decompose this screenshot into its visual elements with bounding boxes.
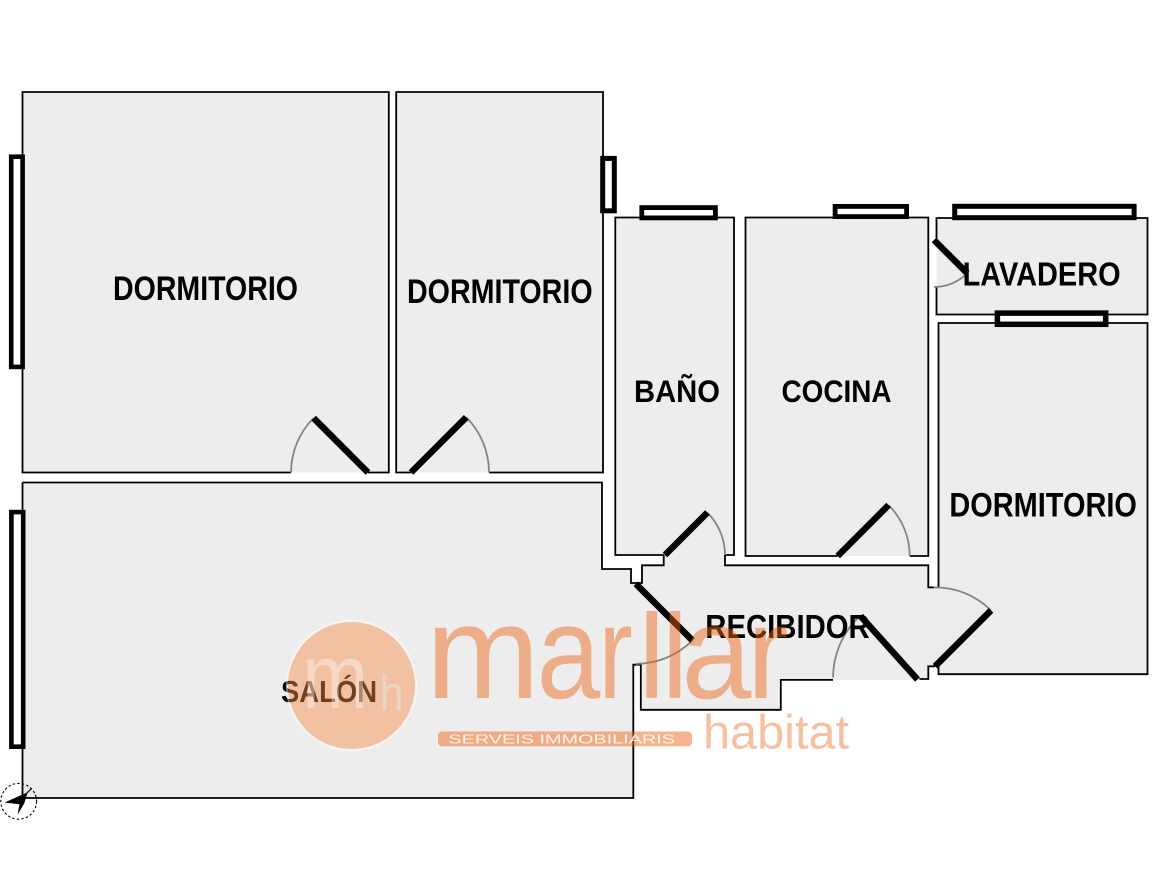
svg-text:a: a [681, 579, 751, 727]
svg-text:r: r [747, 579, 789, 727]
svg-text:habitat: habitat [703, 706, 849, 759]
svg-text:m: m [426, 579, 540, 727]
svg-text:m: m [302, 626, 368, 728]
svg-text:r: r [598, 579, 633, 727]
svg-text:h: h [380, 666, 404, 722]
svg-text:a: a [537, 579, 601, 727]
svg-text:BAÑO: BAÑO [634, 373, 720, 409]
svg-text:DORMITORIO: DORMITORIO [407, 273, 593, 311]
svg-text:LAVADERO: LAVADERO [963, 256, 1121, 293]
svg-text:SERVEIS IMMOBILIARIS: SERVEIS IMMOBILIARIS [448, 732, 675, 747]
svg-text:DORMITORIO: DORMITORIO [113, 270, 298, 308]
svg-text:COCINA: COCINA [782, 373, 892, 409]
svg-text:DORMITORIO: DORMITORIO [949, 487, 1137, 525]
